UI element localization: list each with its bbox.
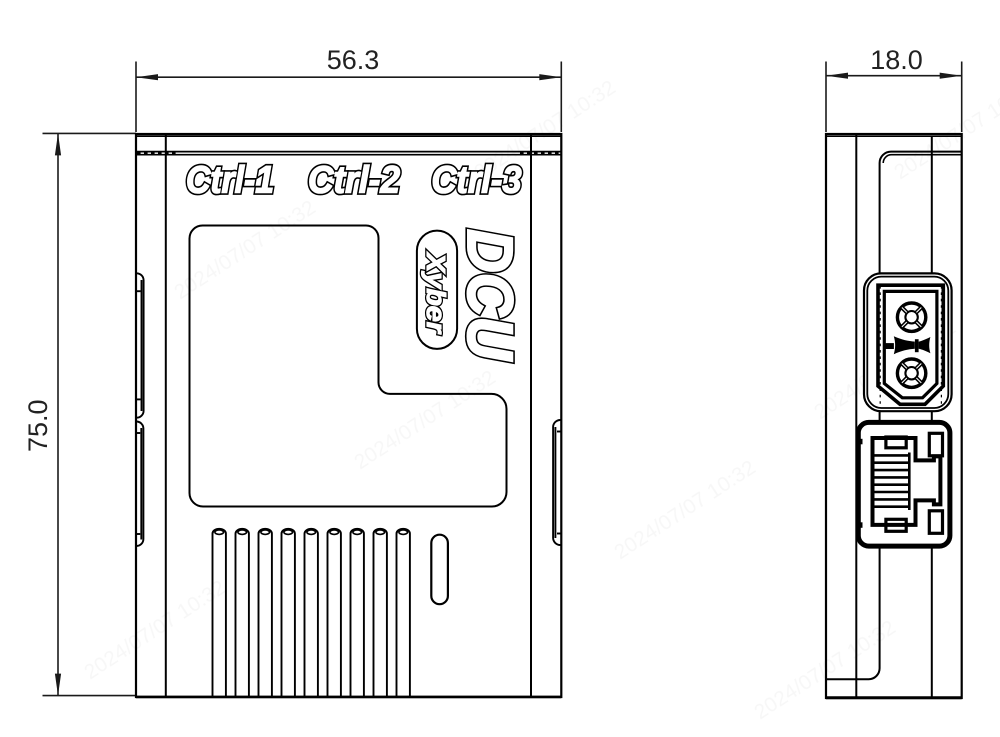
svg-text:DCU: DCU xyxy=(454,229,526,362)
svg-text:Ctrl-2: Ctrl-2 xyxy=(308,159,400,201)
svg-text:Ctrl-3: Ctrl-3 xyxy=(432,159,522,201)
svg-text:Xyber: Xyber xyxy=(421,251,449,336)
svg-text:Ctrl-1: Ctrl-1 xyxy=(186,159,274,201)
svg-text:56.3: 56.3 xyxy=(327,45,380,75)
svg-text:75.0: 75.0 xyxy=(23,399,53,452)
svg-text:18.0: 18.0 xyxy=(870,45,923,75)
